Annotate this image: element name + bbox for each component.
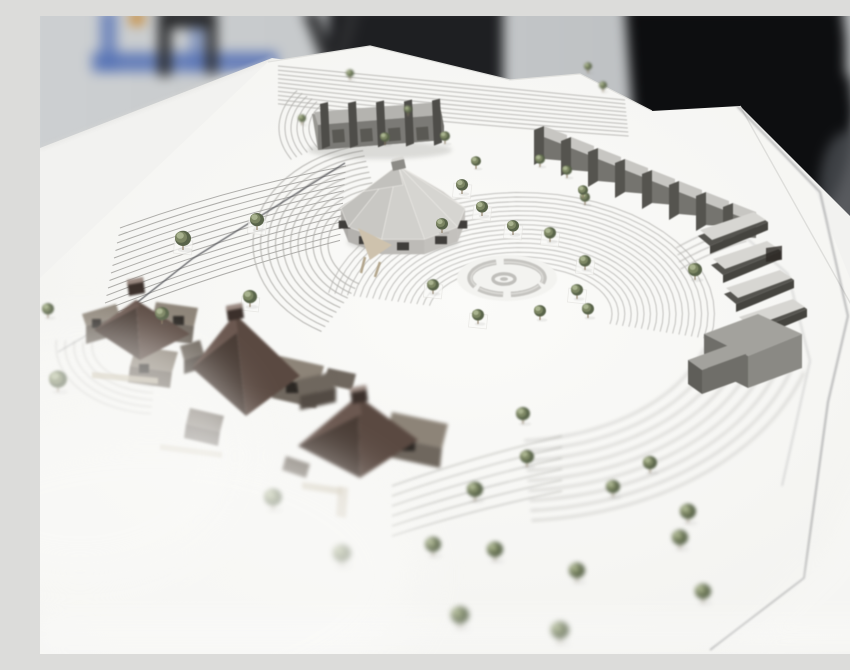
circular-plaza (457, 255, 557, 301)
scene-canvas (40, 16, 850, 654)
photo-architectural-model: architectural site model with contour te… (40, 16, 850, 654)
orange-accent (130, 16, 144, 25)
